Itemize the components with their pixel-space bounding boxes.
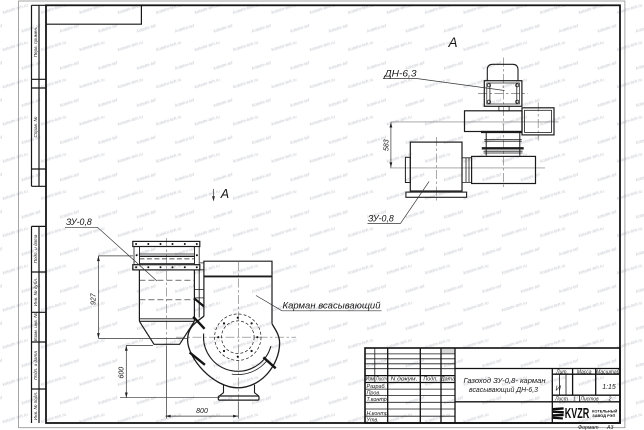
svg-text:Масштаб: Масштаб <box>596 369 620 375</box>
svg-text:всасывающий ДН-6,3: всасывающий ДН-6,3 <box>469 385 539 394</box>
svg-text:Лист: Лист <box>375 377 387 383</box>
svg-text:Взам. инв. №: Взам. инв. № <box>33 313 38 341</box>
svg-text:Перв. примен.: Перв. примен. <box>33 27 38 58</box>
svg-text:ДН-6,3: ДН-6,3 <box>383 68 416 78</box>
svg-text:Инв. № подл.: Инв. № подл. <box>33 392 38 421</box>
svg-text:Утв.: Утв. <box>366 418 379 424</box>
svg-text:583: 583 <box>384 139 391 151</box>
svg-text:ЗАВОД РЭП: ЗАВОД РЭП <box>592 413 615 418</box>
svg-text:Инв. № дубл.: Инв. № дубл. <box>33 278 38 306</box>
svg-text:Листов: Листов <box>579 397 599 403</box>
svg-text:Изм: Изм <box>366 377 375 383</box>
svg-text:KVZR: KVZR <box>565 406 590 422</box>
svg-text:Пров.: Пров. <box>367 390 381 396</box>
svg-text:Газоход ЗУ-0,8- карман: Газоход ЗУ-0,8- карман <box>464 376 546 385</box>
svg-text:1: 1 <box>573 397 576 403</box>
svg-text:А3: А3 <box>606 425 613 430</box>
svg-text:Лит.: Лит. <box>555 369 568 375</box>
svg-text:И: И <box>556 384 562 393</box>
svg-text:Т.контр.: Т.контр. <box>367 397 389 403</box>
svg-text:А: А <box>220 187 229 201</box>
svg-text:Н.контр.: Н.контр. <box>367 411 390 417</box>
svg-text:Формат: Формат <box>578 425 599 430</box>
svg-text:Подп. и дата: Подп. и дата <box>33 351 38 380</box>
svg-text:1:15: 1:15 <box>602 384 616 391</box>
svg-text:Карман всасывающий: Карман всасывающий <box>283 300 382 311</box>
svg-text:600: 600 <box>119 367 126 379</box>
svg-text:ЗУ-0,8: ЗУ-0,8 <box>368 213 394 223</box>
svg-text:N докум.: N докум. <box>391 377 418 383</box>
svg-text:А: А <box>448 35 458 50</box>
svg-text:Масса: Масса <box>577 369 592 375</box>
svg-text:927: 927 <box>91 292 98 305</box>
svg-text:Лист: Лист <box>554 397 568 403</box>
svg-text:Подп. и дата: Подп. и дата <box>33 234 38 263</box>
svg-text:ЗУ-0,8: ЗУ-0,8 <box>66 217 92 227</box>
svg-text:Подп.: Подп. <box>423 377 437 383</box>
svg-text:800: 800 <box>196 408 208 415</box>
svg-text:Разраб.: Разраб. <box>367 384 387 390</box>
svg-text:2: 2 <box>608 397 612 403</box>
svg-text:Дата: Дата <box>440 377 455 383</box>
svg-text:Справ. №: Справ. № <box>33 117 38 138</box>
